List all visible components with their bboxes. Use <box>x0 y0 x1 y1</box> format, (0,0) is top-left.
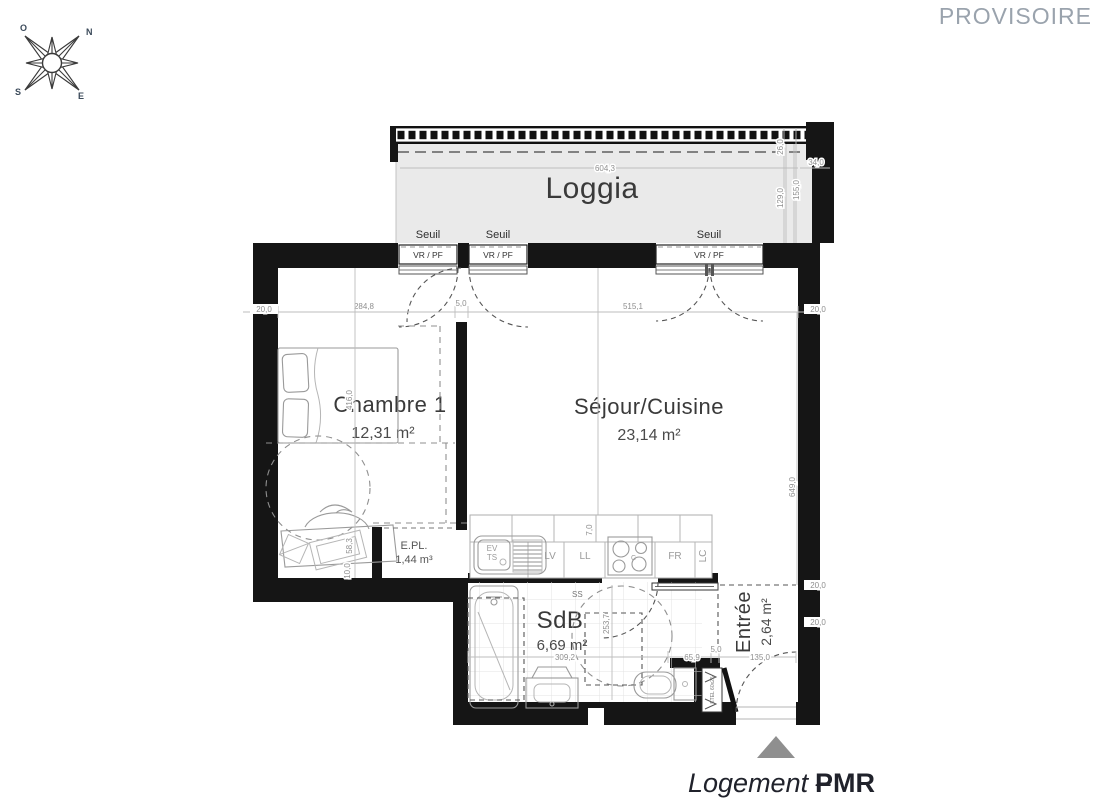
provisional-watermark: PROVISOIRE <box>939 3 1092 29</box>
compass-west-label: O <box>20 23 27 33</box>
dim-wall-right-low: 20,0 <box>810 618 826 627</box>
seuil-label-3: Seuil <box>697 229 721 241</box>
dim-sejour-width: 515,1 <box>623 302 644 311</box>
dim-sdb-wall: 5,0 <box>710 645 722 654</box>
kitchen-counter: EV TS LV LL C FR LC 7,0 <box>470 515 712 578</box>
vrpf-label-2: VR / PF <box>483 250 513 260</box>
floor-plan-drawing: PROVISOIRE N O S E 604,3 26,0 129,0 155, <box>0 0 1098 800</box>
room-area-epl: 1,44 m³ <box>395 554 433 566</box>
dim-chambre-height: 416,0 <box>345 389 354 410</box>
washer-label: LL <box>579 551 591 562</box>
seuil-label-2: Seuil <box>486 229 510 241</box>
dim-counter-depth: 7,0 <box>585 524 594 536</box>
entrance-marker-triangle <box>757 736 795 758</box>
loggia-railing <box>396 126 812 144</box>
room-label-sejour: Séjour/Cuisine <box>574 394 724 419</box>
compass-east-label: E <box>78 91 84 101</box>
sink-ev-label: EV <box>487 544 498 553</box>
compass-rose-icon <box>25 36 79 90</box>
entry-threshold <box>736 707 796 719</box>
room-sdb: SdB 6,69 m² SS <box>468 582 718 708</box>
room-area-chambre: 12,31 m² <box>351 425 415 442</box>
vrpf-label-1: VR / PF <box>413 250 443 260</box>
dim-wall-right-top: 20,0 <box>810 305 826 314</box>
etel-label: ETEL 60x25 <box>710 676 716 704</box>
dim-sdb-height: 253,7 <box>602 613 611 634</box>
room-area-sejour: 23,14 m² <box>617 427 681 444</box>
room-label-epl: E.PL. <box>401 540 428 552</box>
towel-radiator <box>652 583 718 590</box>
plan-type-label: Logement – <box>688 768 832 798</box>
dim-sejour-height: 649,0 <box>788 476 797 497</box>
fridge-label: FR <box>668 551 681 562</box>
sink-ts-label: TS <box>487 553 497 562</box>
dim-wc-width: 65,9 <box>684 653 700 662</box>
dim-loggia-v3: 155,0 <box>792 179 801 200</box>
dim-loggia-v1: 26,0 <box>776 139 785 155</box>
compass-north-label: N <box>86 27 93 37</box>
dim-wall-right-mid: 20,0 <box>810 581 826 590</box>
dim-chambre-low: 58,3 <box>345 538 354 554</box>
sink-drainer <box>513 540 542 572</box>
dim-loggia-v2: 129,0 <box>776 187 785 208</box>
room-entree: Entrée 2,64 m² <box>718 585 796 655</box>
floor-plan-page: PROVISOIRE N O S E 604,3 26,0 129,0 155, <box>0 0 1098 800</box>
dim-entree-width: 135,0 <box>750 653 771 662</box>
dim-wall-left: 20,0 <box>256 305 272 314</box>
plan-type-pmr: PMR <box>815 768 875 798</box>
room-label-sdb: SdB <box>537 607 584 634</box>
pmr-turning-circle-chambre <box>266 436 370 540</box>
vrpf-label-3: VR / PF <box>694 250 724 260</box>
room-label-entree: Entrée <box>733 591 755 653</box>
dim-partition: 5,0 <box>455 299 467 308</box>
towel-radiator-label: SS <box>572 590 583 599</box>
column-unit-label: LC <box>698 550 709 563</box>
chambre-door-arc <box>407 268 461 322</box>
room-area-sdb: 6,69 m² <box>537 637 588 654</box>
compass-south-label: S <box>15 87 21 97</box>
dishwasher-label: LV <box>544 551 556 562</box>
room-label-loggia: Loggia <box>545 172 638 205</box>
room-area-entree: 2,64 m² <box>758 598 774 646</box>
loggia-zone: 604,3 26,0 129,0 155,0 34,0 Loggia <box>390 122 834 243</box>
etel-closet: ETEL 60x25 <box>702 668 722 712</box>
dim-chambre-wall: 10,0 <box>343 563 352 579</box>
dim-sdb-width: 309,2 <box>555 653 576 662</box>
cooktop-label: C <box>631 555 636 562</box>
dim-chambre-width: 284,8 <box>354 302 375 311</box>
seuil-label-1: Seuil <box>416 229 440 241</box>
dim-loggia-end: 34,0 <box>808 158 824 167</box>
